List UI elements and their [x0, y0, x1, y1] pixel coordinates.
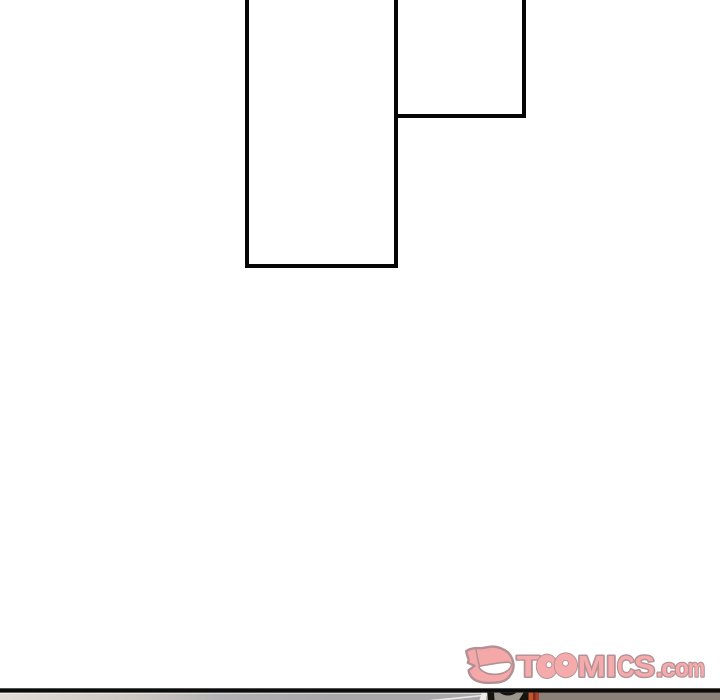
- svg-text:c: c: [661, 655, 676, 683]
- svg-text:m: m: [688, 655, 705, 683]
- svg-text:M: M: [578, 651, 606, 684]
- svg-text:o: o: [675, 655, 689, 683]
- svg-text:S: S: [634, 651, 655, 684]
- svg-text:C: C: [617, 651, 635, 684]
- svg-text:I: I: [606, 651, 617, 684]
